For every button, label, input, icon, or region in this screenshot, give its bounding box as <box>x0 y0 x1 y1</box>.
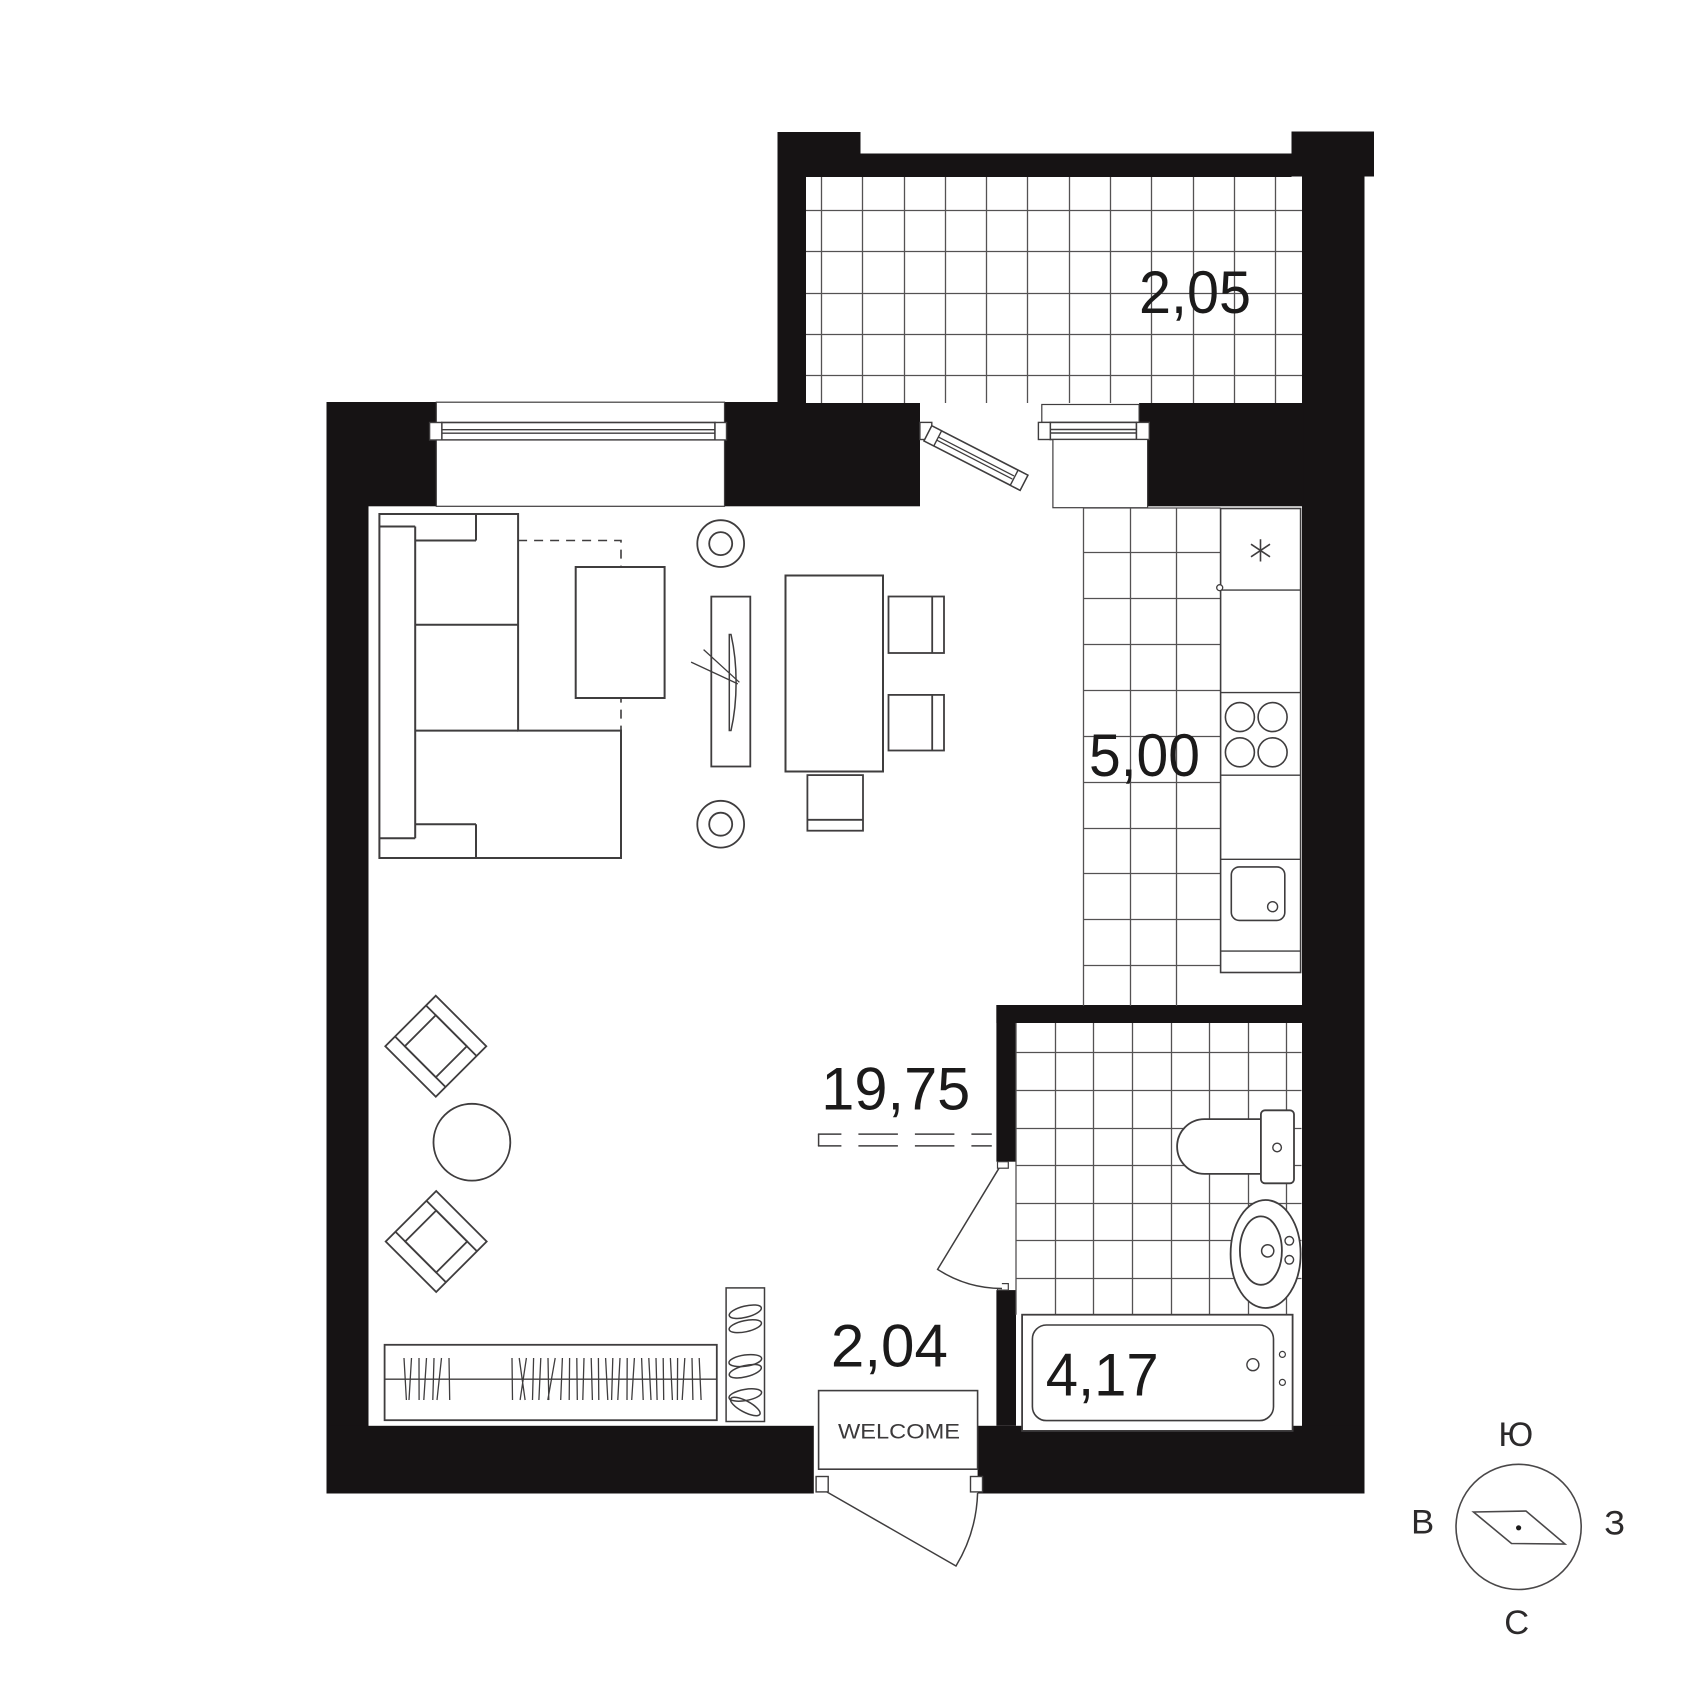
svg-text:Ю: Ю <box>1498 1416 1533 1454</box>
svg-text:2,05: 2,05 <box>1139 259 1251 326</box>
svg-text:2,04: 2,04 <box>831 1313 948 1380</box>
svg-text:4,17: 4,17 <box>1046 1341 1159 1408</box>
svg-text:С: С <box>1504 1604 1529 1642</box>
svg-text:WELCOME: WELCOME <box>838 1420 960 1443</box>
svg-text:19,75: 19,75 <box>821 1055 970 1122</box>
svg-text:5,00: 5,00 <box>1089 722 1200 789</box>
svg-text:З: З <box>1604 1504 1625 1542</box>
svg-text:В: В <box>1411 1503 1434 1541</box>
